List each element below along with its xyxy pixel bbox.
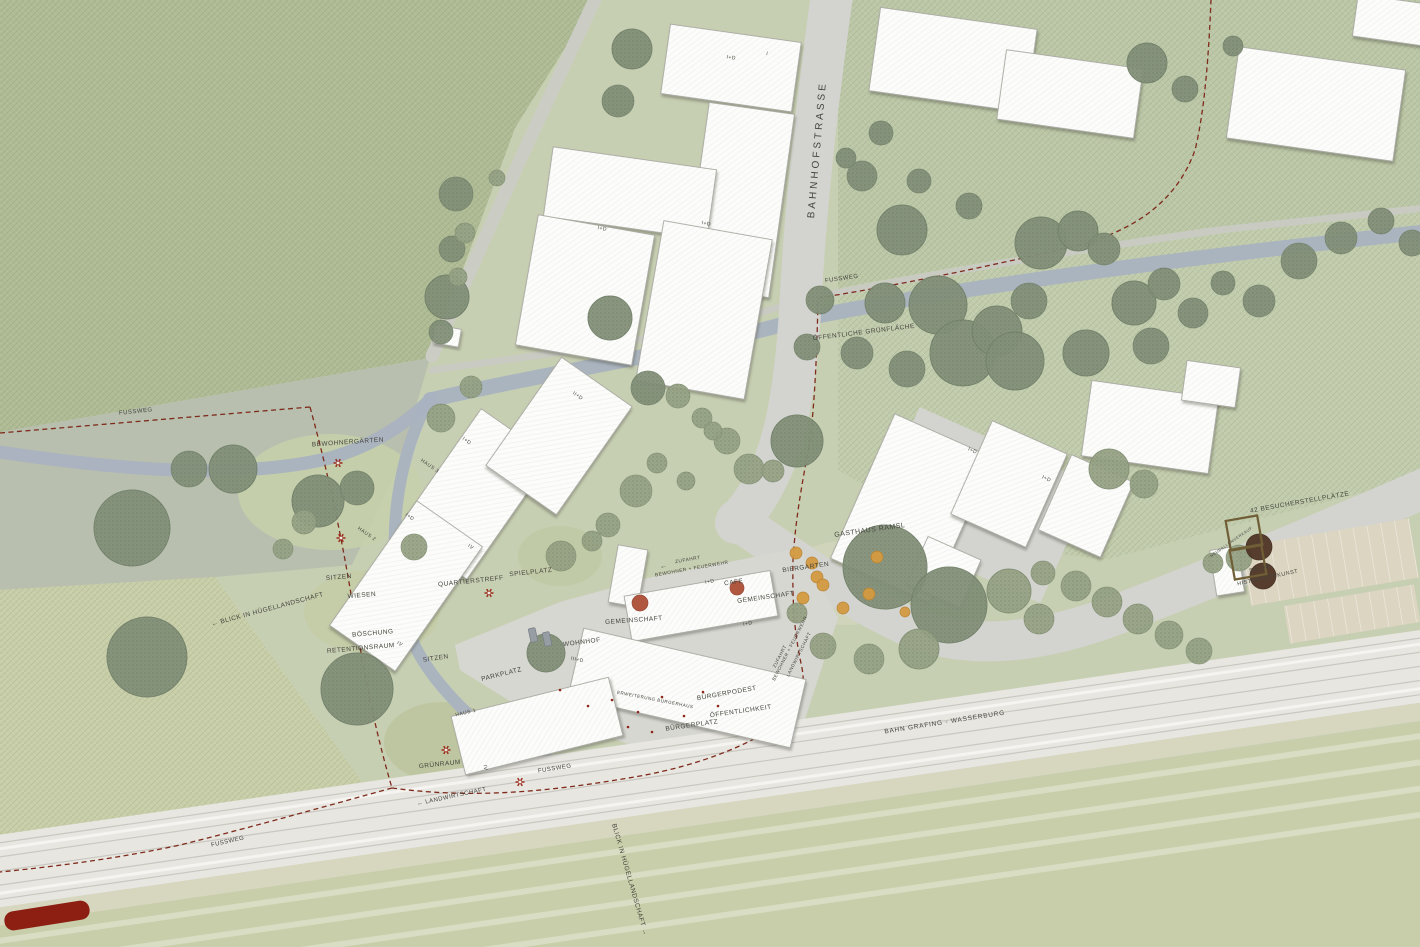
site-plan-drawing: BAHNHOFSTRASSEFUSSWEGÖFFENTLICHE GRÜNFLÄ…	[0, 0, 1420, 947]
tree-texture	[1325, 222, 1357, 254]
orange-tree	[900, 607, 910, 617]
map-label-: ←	[659, 562, 668, 570]
tree-texture	[171, 451, 207, 487]
tree-texture	[1011, 283, 1047, 319]
tree-texture	[449, 268, 467, 286]
plaza-marker-dot	[611, 699, 614, 702]
plaza-marker-dot	[717, 705, 720, 708]
tree-texture	[877, 205, 927, 255]
tree-texture	[1178, 298, 1208, 328]
tree-texture	[588, 296, 632, 340]
orange-tree	[837, 602, 849, 614]
pinwheel-center	[340, 537, 343, 540]
tree-texture	[1172, 76, 1198, 102]
plaza-marker-dot	[587, 705, 590, 708]
tree-texture	[1089, 449, 1129, 489]
tree-texture	[865, 283, 905, 323]
tree-texture	[1243, 285, 1275, 317]
tree-texture	[209, 445, 257, 493]
tree-texture	[1155, 621, 1183, 649]
tree-texture	[427, 404, 455, 432]
tree-texture	[986, 332, 1044, 390]
tree-texture	[1123, 604, 1153, 634]
tree-texture	[582, 531, 602, 551]
tree-texture	[1368, 208, 1394, 234]
tree-texture	[734, 454, 764, 484]
orange-tree	[863, 588, 875, 600]
tree-texture	[1088, 233, 1120, 265]
tree-texture	[1063, 330, 1109, 376]
site-plan-canvas: BAHNHOFSTRASSEFUSSWEGÖFFENTLICHE GRÜNFLÄ…	[0, 0, 1420, 947]
tree-texture	[771, 415, 823, 467]
tree-texture	[987, 569, 1031, 613]
tree-texture	[899, 629, 939, 669]
tree-texture	[1281, 243, 1317, 279]
tree-texture	[460, 376, 482, 398]
plaza-marker-dot	[651, 731, 654, 734]
tree-texture	[666, 384, 690, 408]
tree-texture	[107, 617, 187, 697]
pinwheel-center	[488, 592, 491, 595]
tree-texture	[273, 539, 293, 559]
tree-texture	[889, 351, 925, 387]
tree-texture	[1092, 587, 1122, 617]
tree-texture	[806, 286, 834, 314]
tree-texture	[401, 534, 427, 560]
building-roof-hatch	[515, 215, 654, 365]
plaza-marker-dot	[559, 689, 562, 692]
orange-tree	[817, 579, 829, 591]
tree-texture	[439, 177, 473, 211]
tree-texture	[94, 490, 170, 566]
tree-texture	[1130, 470, 1158, 498]
tree-texture	[489, 170, 505, 186]
tree-texture	[647, 453, 667, 473]
orange-tree	[790, 547, 802, 559]
tree-texture	[1223, 36, 1243, 56]
tree-texture	[956, 193, 982, 219]
tree-texture	[677, 472, 695, 490]
tree-texture	[602, 85, 634, 117]
pinwheel-center	[337, 462, 340, 465]
tree-texture	[854, 644, 884, 674]
building-roof-hatch	[1181, 360, 1240, 407]
tree-texture	[810, 633, 836, 659]
plaza-marker-dot	[702, 691, 705, 694]
tree-texture	[1127, 43, 1167, 83]
tree-texture	[1061, 571, 1091, 601]
map-label-iv: IV	[482, 764, 489, 771]
pinwheel-center	[445, 749, 448, 752]
tree-texture	[631, 371, 665, 405]
tree-texture	[321, 653, 393, 725]
tree-texture	[429, 320, 453, 344]
tree-texture	[1133, 328, 1169, 364]
tree-texture	[455, 223, 475, 243]
tree-texture	[841, 337, 873, 369]
orange-tree	[871, 551, 883, 563]
red-accent-tree	[632, 595, 648, 611]
tree-texture	[292, 510, 316, 534]
tree-texture	[612, 29, 652, 69]
tree-texture	[1186, 638, 1212, 664]
tree-texture	[596, 513, 620, 537]
tree-texture	[1031, 561, 1055, 585]
tree-texture	[704, 422, 722, 440]
tree-texture	[620, 475, 652, 507]
plaza-marker-dot	[627, 726, 630, 729]
tree-texture	[907, 169, 931, 193]
plaza-marker-dot	[683, 715, 686, 718]
tree-texture	[836, 148, 856, 168]
plaza-marker-dot	[637, 711, 640, 714]
pinwheel-center	[519, 781, 522, 784]
tree-texture	[1211, 271, 1235, 295]
tree-texture	[340, 471, 374, 505]
tree-texture	[762, 460, 784, 482]
tree-texture	[1024, 604, 1054, 634]
tree-texture	[869, 121, 893, 145]
tree-texture	[1148, 268, 1180, 300]
building	[1181, 360, 1240, 407]
building	[515, 215, 654, 365]
orange-tree	[797, 592, 809, 604]
